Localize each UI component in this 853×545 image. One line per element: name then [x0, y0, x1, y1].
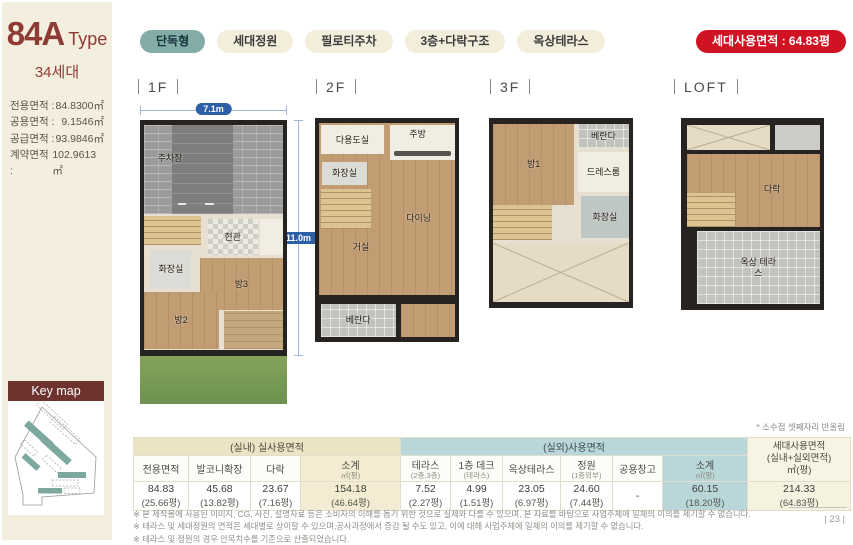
badge-detached: 단독형 — [140, 30, 205, 53]
stairs-2f — [321, 189, 371, 229]
room-label-bathroom: 화장실 — [158, 264, 183, 274]
divider-bar — [737, 79, 738, 94]
area-row-exclusive: 전용면적 : 84.8300㎡ — [10, 98, 104, 114]
room-label-dressroom: 드레스룸 — [587, 167, 620, 177]
area-row-common: 공용면적 : 9.1546㎡ — [10, 114, 104, 130]
floor-header-1f: 1F — [138, 78, 178, 95]
room-label-veranda: 베란다 — [591, 131, 616, 141]
room-label-dining: 다이닝 — [390, 209, 448, 227]
room-bedroom1: 방1 — [493, 124, 574, 206]
stairs-1f — [144, 216, 201, 246]
open-void — [493, 243, 628, 302]
room-entrance: 현관 — [208, 219, 258, 254]
area-value: 84.8300㎡ — [56, 98, 104, 114]
parking-stall-mark — [178, 203, 187, 205]
area-value: 93.9846㎡ — [56, 131, 104, 147]
area-label: 공급면적 : — [10, 131, 54, 147]
page-number-rule — [789, 507, 847, 508]
badge-piloti-parking: 필로티주차 — [305, 30, 392, 53]
area-value: 102.9613㎡ — [52, 147, 104, 180]
unit-count: 34세대 — [2, 61, 112, 82]
value-exclusive: 84.83(25.66평) — [134, 481, 189, 510]
room-label-utility: 다용도실 — [336, 135, 369, 145]
area-table: (실내) 실사용면적 (실외)사용면적 세대사용면적 (실내+실외면적) ㎡(평… — [133, 437, 851, 511]
room-label-parking: 주차장 — [158, 153, 183, 163]
void-cross-lines — [493, 243, 628, 302]
area-value: 9.1546㎡ — [61, 114, 104, 130]
floor-header-loft: LOFT — [674, 78, 738, 95]
total-header-line1: 세대사용면적 — [748, 441, 850, 453]
width-dimension-label: 7.1m — [195, 103, 232, 115]
value-outdoor-subtotal: 60.15(18.20평) — [663, 481, 748, 510]
feature-badges: 단독형 세대정원 필로티주차 3층+다락구조 옥상테라스 세대사용면적 : 64… — [140, 30, 846, 53]
value-total: 214.33(64.83평) — [748, 481, 851, 510]
value-attic: 23.67(7.16평) — [251, 481, 301, 510]
column-header-storage: 공용창고 — [613, 456, 663, 482]
front-yard-grass — [140, 356, 287, 404]
unit-type-title: 84A Type — [2, 15, 112, 53]
floor-label: 1F — [139, 79, 177, 95]
driveway — [172, 125, 233, 215]
floor-label: 3F — [491, 79, 529, 95]
room-label-bedroom2: 방2 — [175, 315, 188, 325]
room-rooftop-terrace: 옥상 테라스 — [697, 231, 820, 304]
parking-stall-mark — [205, 203, 214, 205]
void-cross-lines — [687, 125, 770, 150]
width-dimension-line: 7.1m — [140, 106, 287, 115]
area-label: 계약면적 : — [10, 147, 52, 180]
total-header-line3: ㎡(평) — [748, 465, 850, 477]
column-header-attic: 다락 — [251, 456, 301, 482]
keymap-title: Key map — [8, 381, 104, 401]
room-kitchen: 주방 — [390, 125, 455, 160]
column-header-rooftop: 옥상테라스 — [503, 456, 561, 482]
floorplan-2f-annex: 베란다 — [315, 300, 459, 342]
floor-label: 2F — [317, 79, 355, 95]
room-bathroom-2f: 화장실 — [322, 162, 367, 186]
floorplan-1f: 주차장 현관 화장실 방3 방2 — [140, 120, 287, 356]
room-veranda-2f: 베란다 — [321, 304, 396, 337]
floorplan-3f: 방1 베란다 드레스룸 화장실 — [489, 118, 633, 308]
column-header-balcony: 발코니확장 — [189, 456, 251, 482]
value-terrace: 7.52(2.27평) — [401, 481, 451, 510]
badge-rooftop-terrace: 옥상테라스 — [517, 30, 604, 53]
room-veranda-3f: 베란다 — [578, 124, 628, 149]
room-label-kitchen: 주방 — [409, 129, 426, 139]
room-label-entrance: 현관 — [224, 232, 241, 242]
footnotes: ※ 본 제작물에 사용된 이미지, CG, 사진, 설명자료 등은 소비자의 이… — [133, 508, 793, 545]
badge-garden: 세대정원 — [217, 30, 293, 53]
type-name: 84A — [7, 15, 65, 53]
divider-bar — [529, 79, 530, 94]
value-balcony: 45.68(13.82평) — [189, 481, 251, 510]
footnote-1: ※ 본 제작물에 사용된 이미지, CG, 사진, 설명자료 등은 소비자의 이… — [133, 508, 793, 520]
floor-header-3f: 3F — [490, 78, 530, 95]
floor-header-2f: 2F — [316, 78, 356, 95]
room-label-bathroom: 화장실 — [332, 168, 357, 178]
value-rooftop: 23.05(6.97평) — [503, 481, 561, 510]
badge-loft-structure: 3층+다락구조 — [405, 30, 506, 53]
group-header-outdoor: (실외)사용면적 — [401, 438, 748, 456]
room-dressroom: 드레스룸 — [578, 152, 628, 192]
footnote-3: ※ 테라스 및 정원의 경우 안목치수를 기준으로 산출되었습니다. — [133, 533, 793, 545]
page-number: | 23 | — [824, 514, 845, 525]
room-label-bedroom3: 방3 — [235, 279, 248, 289]
room-label-bathroom: 화장실 — [592, 212, 617, 222]
room-utility: 다용도실 — [321, 125, 384, 154]
floorplan-2f: 다용도실 주방 화장실 다이닝 거실 — [315, 118, 459, 300]
closet — [260, 219, 283, 254]
column-header-deck: 1층 데크(테라스) — [451, 456, 503, 482]
room-label-attic: 다락 — [764, 184, 781, 194]
column-header-outdoor-subtotal: 소계㎡(평) — [663, 456, 748, 482]
room-bedroom2: 방2 — [144, 292, 219, 349]
annex-floor — [401, 304, 454, 337]
area-row-contract: 계약면적 : 102.9613㎡ — [10, 147, 104, 180]
room-bathroom-3f: 화장실 — [581, 196, 629, 238]
room-bathroom-1f: 화장실 — [150, 250, 191, 288]
column-header-terrace: 테라스(2층,3층) — [401, 456, 451, 482]
room-label-rooftop-terrace: 옥상 테라스 — [737, 257, 779, 278]
badge-usable-area: 세대사용면적 : 64.83평 — [696, 30, 846, 53]
height-dimension-line: 11.0m — [294, 120, 303, 356]
column-header-garden: 정원(1층외부) — [561, 456, 613, 482]
type-suffix: Type — [68, 29, 107, 50]
area-row-supply: 공급면적 : 93.9846㎡ — [10, 131, 104, 147]
value-storage: - — [613, 481, 663, 510]
keymap-site-plan — [8, 401, 104, 515]
area-label: 전용면적 : — [10, 98, 54, 114]
column-header-total: 세대사용면적 (실내+실외면적) ㎡(평) — [748, 438, 851, 482]
value-garden: 24.60(7.44평) — [561, 481, 613, 510]
kitchen-counter — [394, 151, 451, 156]
room-label-veranda: 베란다 — [346, 315, 371, 325]
stairs-3f — [493, 205, 552, 239]
loft-gray-box — [775, 125, 819, 150]
table-group-header-row: (실내) 실사용면적 (실외)사용면적 세대사용면적 (실내+실외면적) ㎡(평… — [134, 438, 851, 456]
room-label-bedroom1: 방1 — [527, 159, 540, 169]
floorplan-loft: 다락 옥상 테라스 — [681, 118, 824, 310]
total-header-line2: (실내+실외면적) — [748, 453, 850, 465]
column-header-indoor-subtotal: 소계㎡(평) — [301, 456, 401, 482]
rounding-note: * 소수점 셋째자리 반올림 — [756, 421, 845, 433]
room-area: 주차장 — [144, 125, 284, 215]
table-value-row: 84.83(25.66평) 45.68(13.82평) 23.67(7.16평)… — [134, 481, 851, 510]
footnote-2: ※ 테라스 및 세대정원의 면적은 세대별로 상이할 수 있으며,공사과정에서 … — [133, 520, 793, 532]
divider-bar — [355, 79, 356, 94]
area-label: 공용면적 : — [10, 114, 54, 130]
area-summary-list: 전용면적 : 84.8300㎡ 공용면적 : 9.1546㎡ 공급면적 : 93… — [2, 98, 112, 179]
divider-bar — [177, 79, 178, 94]
stairs-loft — [687, 193, 736, 228]
value-indoor-subtotal: 154.18(46.64평) — [301, 481, 401, 510]
table-column-header-row: 전용면적 발코니확장 다락 소계㎡(평) 테라스(2층,3층) 1층 데크(테라… — [134, 456, 851, 482]
floor-label: LOFT — [675, 79, 737, 95]
open-void — [687, 125, 770, 150]
deck-1f — [224, 311, 283, 349]
column-header-exclusive: 전용면적 — [134, 456, 189, 482]
group-header-indoor: (실내) 실사용면적 — [134, 438, 401, 456]
room-label-living: 거실 — [332, 238, 390, 256]
value-deck: 4.99(1.51평) — [451, 481, 503, 510]
keymap-site-svg — [8, 401, 104, 515]
